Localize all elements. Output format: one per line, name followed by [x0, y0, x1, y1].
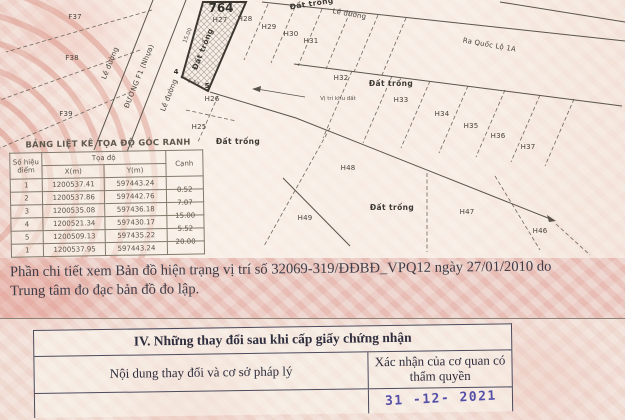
changes-col-confirm: Xác nhận của cơ quan có thẩm quyền: [368, 350, 511, 388]
cell-edge: 20.00: [167, 241, 204, 255]
cell-point: 1: [10, 179, 42, 193]
map-reference-note: Phần chi tiết xem Bản đồ hiện trạng vị t…: [10, 257, 620, 301]
cell-y: 597436.18: [105, 203, 167, 217]
map-point-5: 5: [205, 82, 210, 90]
map-label-h47: H47: [460, 208, 475, 216]
map-label-le-duong-left2: Lề đường: [159, 78, 179, 113]
map-label-764: 764: [208, 1, 233, 15]
map-label-h34: H34: [435, 110, 450, 118]
map-label-h25: H25: [192, 123, 207, 131]
header-point: Số hiệu điểm: [10, 153, 43, 180]
cell-x: 1200537.95: [43, 243, 106, 257]
coordinate-table-title: BẢNG LIỆT KÊ TỌA ĐỘ GÓC RANH: [9, 136, 207, 149]
map-label-h46: H46: [533, 227, 548, 235]
changes-section: IV. Những thay đổi sau khi cấp giấy chứn…: [33, 323, 513, 418]
map-label-dat-trong-low: Đất trống: [370, 203, 414, 212]
changes-col-content: Nội dung thay đổi và cơ sở pháp lý: [34, 352, 368, 393]
header-x: X(m): [42, 165, 105, 179]
map-label-f39: F39: [59, 110, 73, 118]
cell-x: 1200535.08: [43, 204, 106, 218]
cell-y: 597443.24: [105, 177, 167, 191]
map-label-h30: H30: [284, 30, 299, 38]
changes-entry-content: [35, 389, 369, 418]
map-label-h27: H27: [213, 16, 228, 24]
map-label-f37: F37: [68, 13, 82, 21]
cell-point: 4: [11, 218, 43, 232]
map-label-h37: H37: [521, 143, 536, 151]
date-stamp: 31 -12- 2021: [384, 390, 497, 410]
header-y: Y(m): [104, 164, 166, 178]
cell-point: 3: [11, 205, 43, 219]
map-label-h29: H29: [262, 23, 277, 31]
map-label-h35: H35: [464, 122, 479, 130]
map-label-h49: H49: [298, 214, 313, 222]
cell-x: 1200509.13: [43, 230, 106, 244]
cell-y: 597435.22: [105, 228, 167, 242]
scanned-land-certificate-page: { "map": { "plot_number": "764", "labels…: [0, 0, 625, 420]
map-label-h26: H26: [205, 95, 220, 103]
map-label-dat-trong-low-left: Đất trống: [216, 137, 260, 146]
cell-y: 597430.17: [105, 215, 167, 229]
map-label-dat-trong-top: Đất trống: [289, 0, 334, 11]
header-canh: Cạnh: [165, 150, 203, 177]
cell-y: 597443.24: [106, 241, 168, 255]
map-label-vi-tri-khu-dat: Vị trí khu đất: [320, 95, 356, 102]
map-label-h28: H28: [238, 15, 253, 23]
cell-point: 5: [11, 231, 43, 245]
map-label-h48: H48: [341, 164, 356, 172]
coordinate-table: BẢNG LIỆT KÊ TỌA ĐỘ GÓC RANH Số hiệu điể…: [9, 136, 209, 257]
table-row: 1 1200537.95 597443.24 20.00: [11, 241, 204, 257]
map-label-dat-trong-mid: Đất trống: [369, 79, 413, 88]
cell-point: 2: [10, 192, 42, 206]
map-label-h32: H32: [334, 74, 349, 82]
map-label-h36: H36: [491, 132, 506, 140]
cell-point: 1: [11, 244, 43, 258]
cell-y: 597442.76: [105, 190, 167, 204]
map-label-le-duong-top: Lề đường: [332, 7, 367, 21]
cell-x: 1200521.34: [43, 217, 106, 231]
map-label-h31: H31: [304, 37, 319, 45]
map-label-f38: F38: [65, 54, 79, 62]
map-label-quoc-lo-1a: Ra Quốc Lộ 1A: [462, 36, 516, 53]
section-divider: [0, 318, 625, 319]
map-label-h33: H33: [394, 96, 409, 104]
map-point-4: 4: [174, 68, 179, 76]
changes-entry-confirm: 31 -12- 2021: [369, 387, 512, 413]
cell-x: 1200537.41: [42, 178, 105, 192]
cell-x: 1200537.86: [42, 191, 105, 205]
